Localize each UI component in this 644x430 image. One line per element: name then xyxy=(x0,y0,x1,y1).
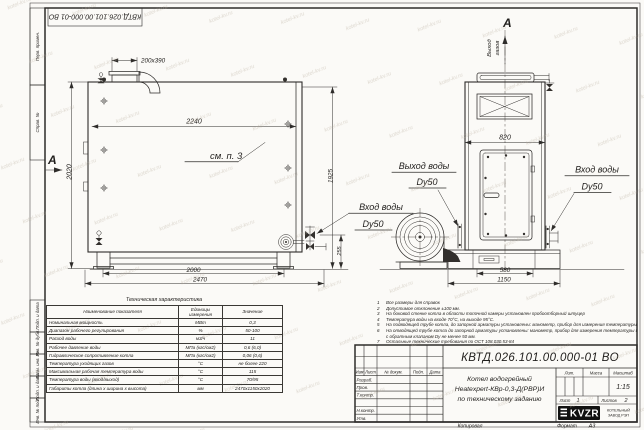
spec-row: Температура уходящих газов°Сне более 220 xyxy=(47,359,283,367)
water-in-right-label: Вход воды xyxy=(575,165,619,175)
company-name-line: ЗАВОД РЭП xyxy=(608,414,629,418)
mass-label: Масса xyxy=(590,370,603,375)
water-out-label: Выход воды xyxy=(399,161,450,171)
side-view-dimensions: 200х390 2240 2020 1925 255 2000 2470 см.… xyxy=(46,58,413,288)
product-name-line: Котел водогрейный xyxy=(467,375,532,383)
technical-notes: 1Все размеры для справок 2Допустимое отк… xyxy=(377,300,637,345)
lifting-eye xyxy=(102,78,106,82)
dim-820: 820 xyxy=(499,135,511,142)
spec-header: Единицы измерения xyxy=(179,306,223,319)
dim-580: 580 xyxy=(500,267,511,274)
spec-row: Номинальная мощностьМВт0,3 xyxy=(47,319,283,327)
dim-2020: 2020 xyxy=(67,164,74,181)
spec-row: Диапазон рабочего регулирования%50-100 xyxy=(47,327,283,335)
flue-valve xyxy=(546,84,553,91)
door-handle xyxy=(484,193,499,198)
dim-1150: 1150 xyxy=(497,277,511,284)
sheet-value: 1 xyxy=(576,398,579,404)
boiler-door xyxy=(480,150,535,240)
sheet-label: Лист xyxy=(559,398,571,403)
drain-valve xyxy=(96,231,103,245)
kvzr-logo-text: KVZR xyxy=(570,409,600,420)
spec-row: Габариты котла (длина х ширина х высота)… xyxy=(47,384,283,392)
water-in-left-label: Вход воды xyxy=(359,202,403,212)
blower-fan xyxy=(391,208,461,269)
dim-2240: 2240 xyxy=(185,119,202,126)
dim-flue: 200х390 xyxy=(140,58,166,65)
gas-outlet-label: газов xyxy=(495,41,501,56)
water-out-flange xyxy=(458,224,462,248)
spec-table-title: Техническая характеристика xyxy=(46,297,282,303)
sheets-value: 2 xyxy=(623,398,627,404)
format-label: Формат xyxy=(557,424,577,430)
margin-label: Инв. № подл. xyxy=(35,396,40,423)
gas-outlet-label: Выход xyxy=(487,39,493,57)
scale-label: Масштаб xyxy=(613,370,633,375)
doc-number: КВТД.026.101.00.000-01 ВО xyxy=(461,352,619,364)
left-margin-cells: Перв. примен. Справ. № Подп. и дата Инв.… xyxy=(30,8,45,424)
product-name-line: по техническому заданию xyxy=(458,395,542,403)
corner-stamp-text: КВТД.026.101.00.000-01 ВО xyxy=(48,13,141,22)
title-block: Изм Лист № докум. Подп. Дата Разраб. Про… xyxy=(355,345,637,422)
spec-row: Расход водым3/ч11 xyxy=(47,335,283,343)
boiler-rear-view: А Выход газов xyxy=(380,16,629,287)
sheets-label: Листов xyxy=(600,398,617,403)
drawing-sheet-page: { "sheet": { "corner_stamp": "КВТД.026.1… xyxy=(0,0,644,430)
margin-label: Справ. № xyxy=(35,112,40,132)
row-ncontrol: Н.контр. xyxy=(357,408,376,413)
copied-label: Копировал xyxy=(458,424,483,430)
note-line: 7Остальные технические требования по ОСТ… xyxy=(377,339,637,345)
col-sign: Подп. xyxy=(413,370,424,375)
spec-row: Рабочее давление водыМПа (кгс/см2)0,6 (6… xyxy=(47,343,283,351)
lit-label: Лит. xyxy=(564,370,575,375)
spec-row: Максимальная рабочая температура воды°С1… xyxy=(47,368,283,376)
dim-2000: 2000 xyxy=(185,267,201,274)
scale-value: 1:15 xyxy=(616,384,630,391)
water-in-left-dn: Dу50 xyxy=(362,219,383,229)
col-list: Лист xyxy=(364,370,376,375)
col-doc: № докум. xyxy=(384,370,402,375)
lifting-eye xyxy=(283,78,287,82)
product-name-line: Heatexpert-КВр-0,3-Д(РВР)И xyxy=(455,386,545,393)
spec-table: Техническая характеристика Наименование … xyxy=(46,297,282,393)
dim-255: 255 xyxy=(337,245,343,256)
boiler-side-view xyxy=(84,72,349,270)
format-value: А3 xyxy=(588,424,597,430)
kvzr-logo: KVZR КОТЕЛЬНЫЙ ЗАВОД РЭП xyxy=(558,406,630,420)
company-name-line: КОТЕЛЬНЫЙ xyxy=(607,409,630,413)
row-tcontrol: Т.контр. xyxy=(357,393,375,398)
row-developed: Разраб. xyxy=(357,377,373,382)
see-note-label: см. п. 3 xyxy=(210,151,243,162)
water-out-dn: Dу50 xyxy=(416,177,437,187)
col-izm: Изм xyxy=(356,370,364,375)
section-a-marker: А xyxy=(47,153,57,167)
spec-row: Температура воды (вход/выход)°С70/95 xyxy=(47,376,283,384)
spec-header: Значение xyxy=(223,306,283,319)
dim-1925: 1925 xyxy=(328,169,335,184)
row-checked: Пров. xyxy=(357,385,369,390)
dim-2470: 2470 xyxy=(192,277,208,284)
row-approved: Утв. xyxy=(357,416,367,421)
spec-header: Наименование показателя xyxy=(47,306,179,319)
margin-label: Подп. и дата xyxy=(35,302,40,330)
water-in-right-dn: Dу50 xyxy=(581,182,602,192)
margin-label: Перв. примен. xyxy=(35,32,40,61)
view-a-label: А xyxy=(502,16,512,30)
corner-stamp: КВТД.026.101.00.000-01 ВО xyxy=(48,8,142,26)
spec-row: Гидравлическое сопротивление котлаМПа (к… xyxy=(47,351,283,359)
col-date: Дата xyxy=(428,370,441,375)
